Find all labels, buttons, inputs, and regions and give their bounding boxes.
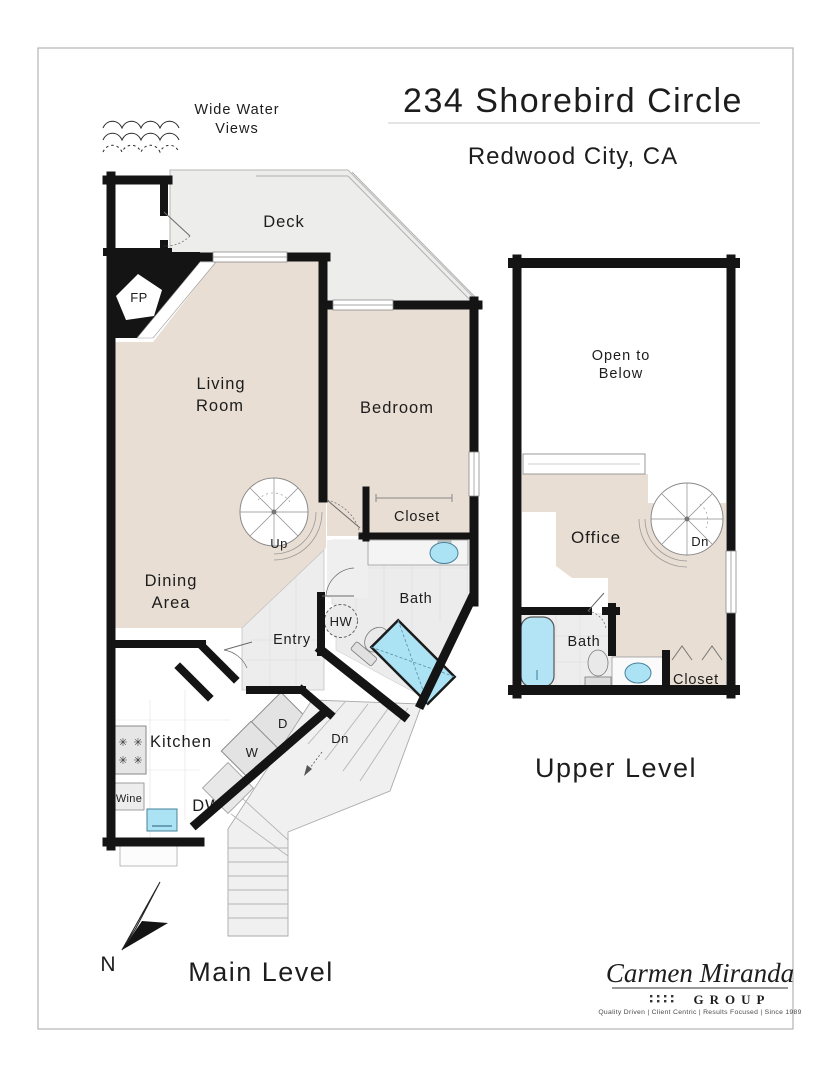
upper-window	[726, 551, 736, 613]
burner-icon: ✳	[133, 737, 142, 749]
living-room-label-2: Room	[196, 397, 244, 415]
upper-bath-label: Bath	[567, 634, 600, 650]
fireplace-label: FP	[130, 290, 148, 305]
office-label: Office	[571, 528, 621, 547]
kitchen-label: Kitchen	[150, 733, 212, 751]
dining-area-label-2: Area	[152, 594, 191, 612]
upper-sink-icon	[625, 663, 651, 683]
page-subtitle: Redwood City, CA	[468, 143, 678, 170]
deck-label: Deck	[263, 213, 305, 231]
brand-tagline: Quality Driven | Client Centric | Result…	[598, 1009, 801, 1016]
burner-icon: ✳	[118, 737, 127, 749]
upper-toilet-icon	[588, 650, 608, 676]
burner-icon: ✳	[133, 755, 142, 767]
porch-step	[120, 846, 177, 866]
burner-icon: ✳	[118, 755, 127, 767]
floor-plan-canvas: 234 Shorebird Circle Redwood City, CA Wi…	[0, 0, 835, 1080]
entry-label: Entry	[273, 632, 311, 648]
wine-label: Wine	[116, 793, 142, 805]
brand-name: Carmen Miranda	[606, 958, 794, 988]
living-room-label-1: Living	[196, 375, 245, 393]
kitchen-sink-icon	[147, 809, 177, 831]
upper-level-caption: Upper Level	[535, 753, 697, 783]
stairs-down-label: Dn	[331, 731, 349, 746]
water-heater-label: HW	[330, 614, 353, 629]
dining-area-label-1: Dining	[145, 572, 198, 590]
sink-icon	[430, 543, 458, 564]
bedroom-area	[327, 309, 470, 536]
bath-label: Bath	[399, 591, 432, 607]
washer-label: W	[246, 745, 259, 760]
upper-toilet-tank	[585, 677, 611, 686]
main-level-caption: Main Level	[188, 957, 334, 987]
water-views-line1: Wide Water	[194, 102, 279, 118]
brand-group: GROUP	[694, 992, 771, 1007]
bedroom-closet-label: Closet	[394, 509, 440, 525]
office-area-top	[522, 474, 648, 512]
water-views-line2: Views	[215, 121, 258, 137]
stairs-up-label: Up	[270, 536, 288, 551]
page-title: 234 Shorebird Circle	[403, 82, 743, 120]
compass-label: N	[100, 953, 115, 976]
dryer-label: D	[278, 716, 288, 731]
open-to-below-label-1: Open to	[592, 348, 651, 364]
upper-stairs-down-label: Dn	[691, 534, 709, 549]
open-to-below-label-2: Below	[599, 366, 644, 382]
bedroom-label: Bedroom	[360, 399, 434, 417]
